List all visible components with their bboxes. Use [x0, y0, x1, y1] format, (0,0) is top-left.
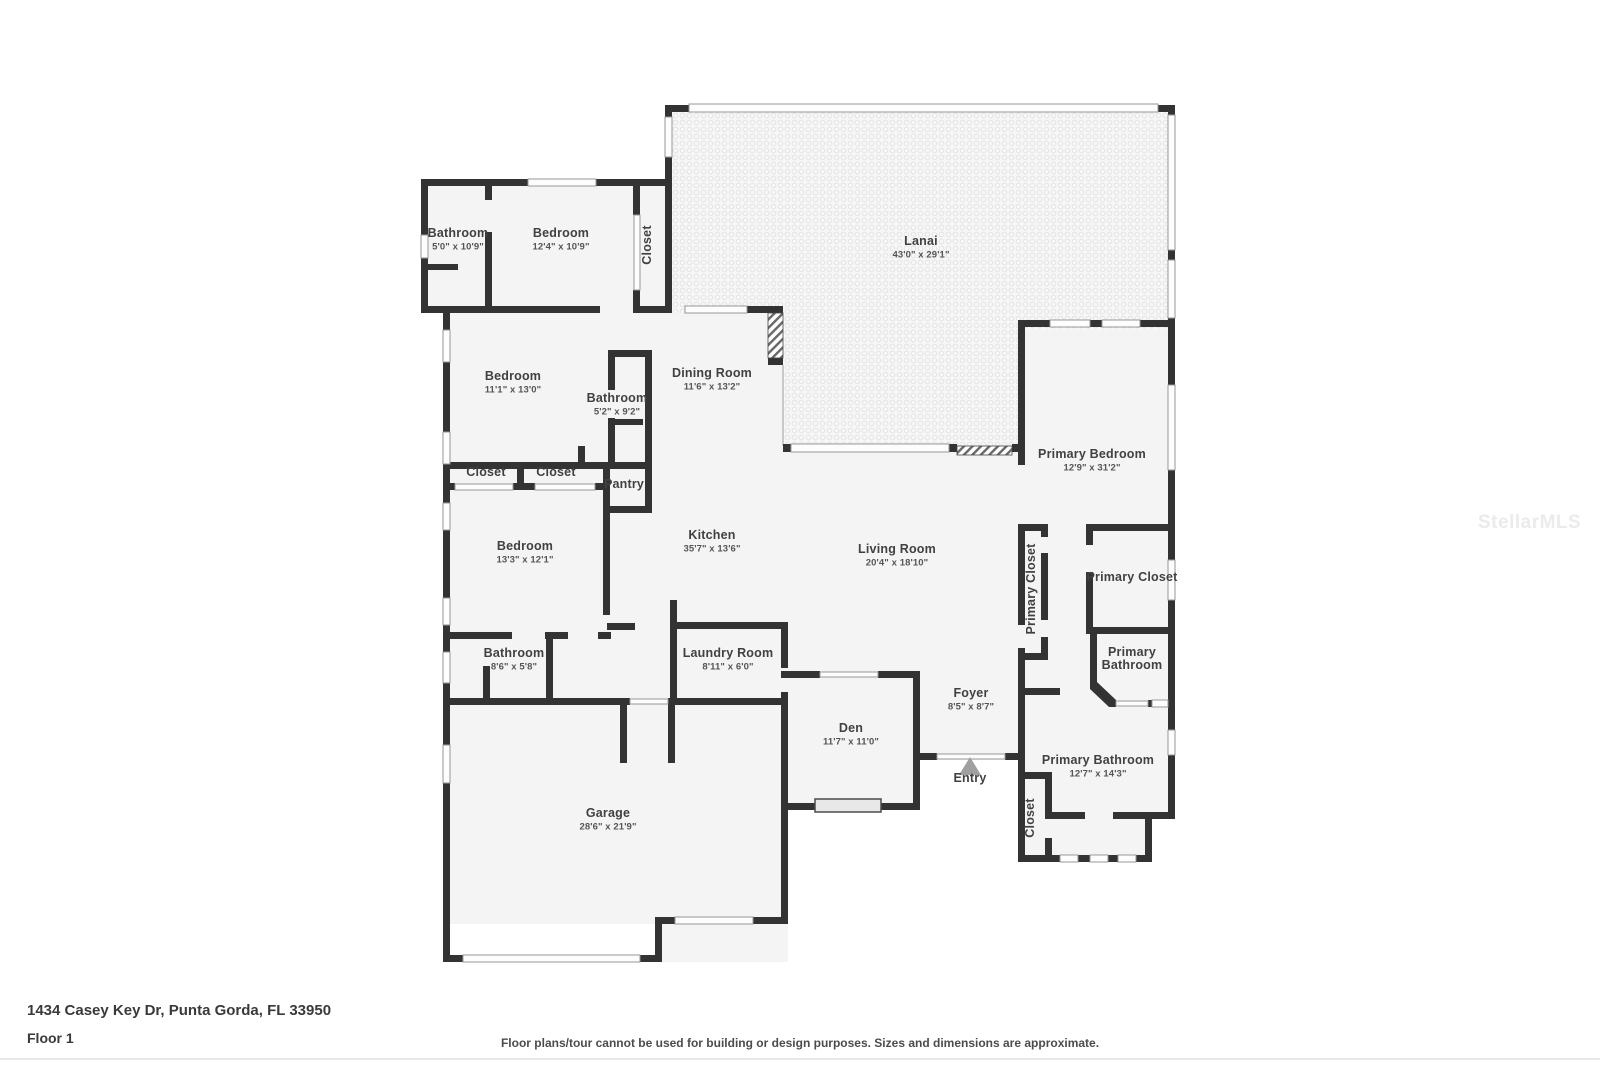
room-label-bathroom: Bathroom5'2" x 9'2": [587, 391, 648, 418]
room-label-primary-closet: Primary Closet: [1024, 543, 1038, 635]
footer-divider: [0, 1058, 1600, 1060]
room-label-dining-room: Dining Room11'6" x 13'2": [672, 366, 752, 393]
room-label-closet: Closet: [640, 225, 654, 265]
room-label-pantry: Pantry: [604, 477, 644, 491]
entry-door: [937, 754, 1005, 759]
garage-door: [463, 955, 640, 962]
floor-plan-svg: Bathroom5'0" x 10'9"Bedroom12'4" x 10'9"…: [0, 0, 1600, 1066]
footer-disclaimer: Floor plans/tour cannot be used for buil…: [0, 1036, 1600, 1050]
living-slider: [791, 444, 949, 452]
closet-slider: [455, 484, 513, 490]
closet-slider: [535, 484, 595, 490]
room-label-closet: Closet: [466, 465, 506, 479]
room-label-foyer: Foyer8'5" x 8'7": [948, 686, 994, 713]
den-opening: [820, 672, 878, 677]
room-label-bathroom: Bathroom8'6" x 5'8": [484, 646, 545, 673]
lanai-screen-wall: [689, 104, 1158, 112]
room-label-primary: PrimaryBathroom: [1102, 645, 1163, 672]
room-label-bedroom: Bedroom13'3" x 12'1": [496, 539, 553, 566]
room-label-closet: Closet: [1023, 798, 1037, 838]
room-label-bedroom: Bedroom12'4" x 10'9": [532, 226, 589, 253]
room-label-closet: Closet: [536, 465, 576, 479]
room-label-living-room: Living Room20'4" x 18'10": [858, 542, 936, 569]
room-label-bedroom: Bedroom11'1" x 13'0": [485, 369, 542, 396]
room-label-entry: Entry: [954, 771, 987, 785]
footer-address: 1434 Casey Key Dr, Punta Gorda, FL 33950: [27, 1002, 331, 1019]
watermark: StellarMLS: [1478, 512, 1598, 534]
room-label-bathroom: Bathroom5'0" x 10'9": [428, 226, 489, 253]
floor-plan-canvas: Bathroom5'0" x 10'9"Bedroom12'4" x 10'9"…: [0, 0, 1600, 1066]
lanai-floor-edge: [782, 365, 784, 446]
den-bay-window: [815, 799, 881, 812]
room-label-garage: Garage28'6" x 21'9": [579, 806, 636, 833]
dining-slider: [685, 306, 747, 313]
room-label-primary-closet: Primary Closet: [1086, 570, 1178, 584]
room-label-kitchen: Kitchen35'7" x 13'6": [683, 528, 740, 555]
